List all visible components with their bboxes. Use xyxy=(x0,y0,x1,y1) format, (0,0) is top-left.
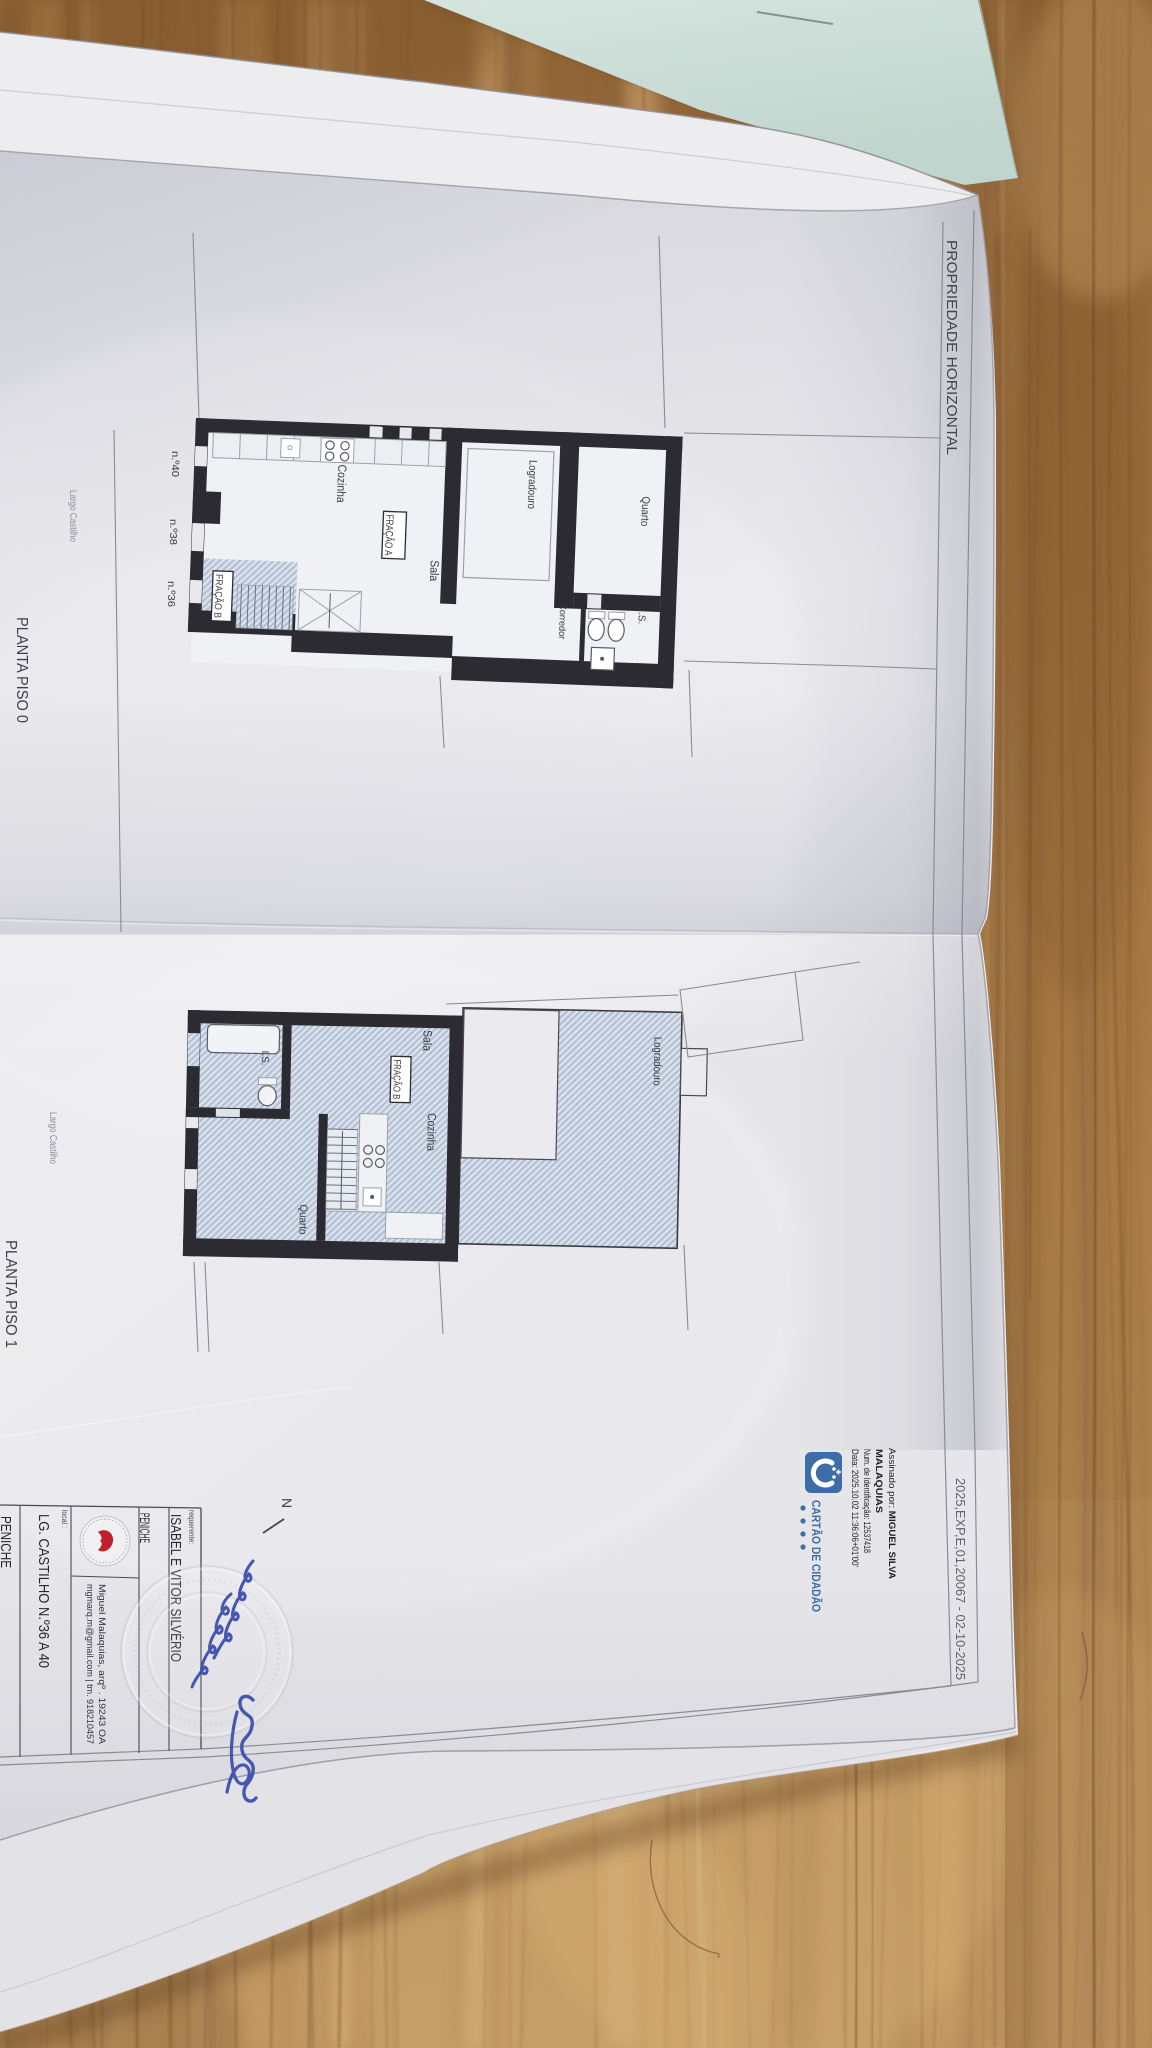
svg-text:Data: 2025.10.02 11:36:06+01'0: Data: 2025.10.02 11:36:06+01'00' xyxy=(849,1449,860,1567)
svg-text:n.º36: n.º36 xyxy=(165,581,177,607)
svg-text:LG. CASTILHO N.º36 A 40: LG. CASTILHO N.º36 A 40 xyxy=(35,1514,52,1668)
svg-text:Corredor: Corredor xyxy=(556,603,568,639)
svg-text:PLANTA PISO 0: PLANTA PISO 0 xyxy=(13,617,30,723)
svg-text:Largo Castilho: Largo Castilho xyxy=(67,490,78,542)
svg-text:Sala: Sala xyxy=(427,560,442,582)
svg-text:Logradouro: Logradouro xyxy=(525,460,539,509)
svg-text:PROPRIEDADE HORIZONTAL: PROPRIEDADE HORIZONTAL xyxy=(943,240,960,455)
svg-text:Assinado por: MIGUEL SILVA: Assinado por: MIGUEL SILVA xyxy=(886,1448,897,1579)
svg-text:Quarto: Quarto xyxy=(296,1204,309,1234)
svg-text:PLANTA PISO 1: PLANTA PISO 1 xyxy=(2,1240,19,1348)
svg-text:Quarto: Quarto xyxy=(638,496,651,526)
svg-text:I.S.: I.S. xyxy=(635,609,647,624)
svg-text:FRAÇÃO B: FRAÇÃO B xyxy=(390,1059,404,1100)
svg-text:Cozinha: Cozinha xyxy=(334,464,349,503)
svg-text:2025,EXP,E,01,20067 - 02-10-20: 2025,EXP,E,01,20067 - 02-10-2025 xyxy=(953,1478,967,1680)
svg-text:requerente:: requerente: xyxy=(187,1510,196,1544)
svg-text:Cozinha: Cozinha xyxy=(424,1113,439,1152)
svg-text:n.º40: n.º40 xyxy=(169,451,181,477)
svg-text:Sala: Sala xyxy=(420,1030,434,1052)
svg-text:Miguel Malaquias, arqº . 1924: Miguel Malaquias, arqº . 19243 OA xyxy=(97,1584,107,1744)
svg-text:FRAÇÃO A: FRAÇÃO A xyxy=(382,514,397,555)
svg-text:PENICHE: PENICHE xyxy=(0,1516,14,1568)
svg-text:Num. de Identificação: 1253741: Num. de Identificação: 12537418 xyxy=(861,1449,872,1553)
svg-text:Largo Castilho: Largo Castilho xyxy=(47,1112,58,1164)
svg-text:PENICHE: PENICHE xyxy=(137,1513,153,1543)
svg-text:Logradouro: Logradouro xyxy=(651,1037,664,1086)
svg-text:local :: local : xyxy=(60,1510,69,1528)
svg-text:mgmarq.m@gmail.com | tm. 918: mgmarq.m@gmail.com | tm. 918210457 xyxy=(85,1584,95,1744)
svg-text:I.S.: I.S. xyxy=(259,1050,270,1065)
svg-text:MALAQUIAS: MALAQUIAS xyxy=(873,1449,884,1513)
svg-text:CARTÃO DE CIDADÃO: CARTÃO DE CIDADÃO xyxy=(809,1500,824,1612)
svg-text:N: N xyxy=(279,1498,295,1508)
svg-text:n.º38: n.º38 xyxy=(167,519,179,545)
